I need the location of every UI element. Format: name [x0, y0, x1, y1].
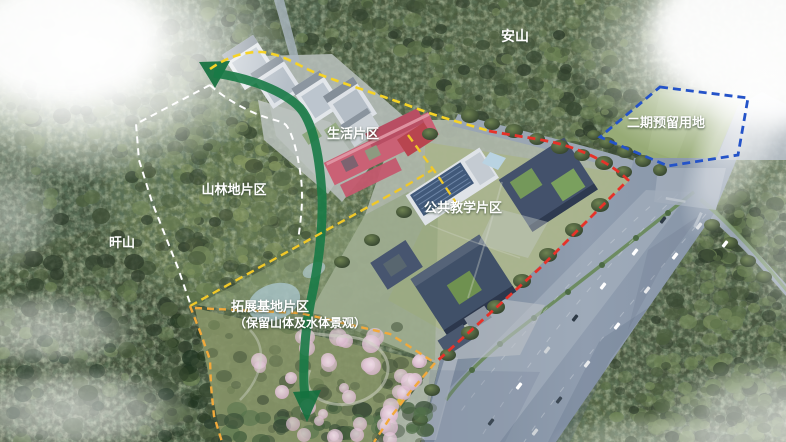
svg-text:（保留山体及水体景观）: （保留山体及水体景观） — [234, 315, 366, 330]
svg-text:二期预留用地: 二期预留用地 — [627, 115, 705, 130]
svg-text:安山: 安山 — [501, 28, 529, 44]
svg-text:旰山: 旰山 — [109, 235, 135, 250]
svg-text:生活片区: 生活片区 — [327, 126, 379, 141]
svg-text:公共教学片区: 公共教学片区 — [424, 200, 502, 215]
svg-text:拓展基地片区: 拓展基地片区 — [231, 299, 309, 314]
svg-text:山林地片区: 山林地片区 — [201, 182, 266, 197]
